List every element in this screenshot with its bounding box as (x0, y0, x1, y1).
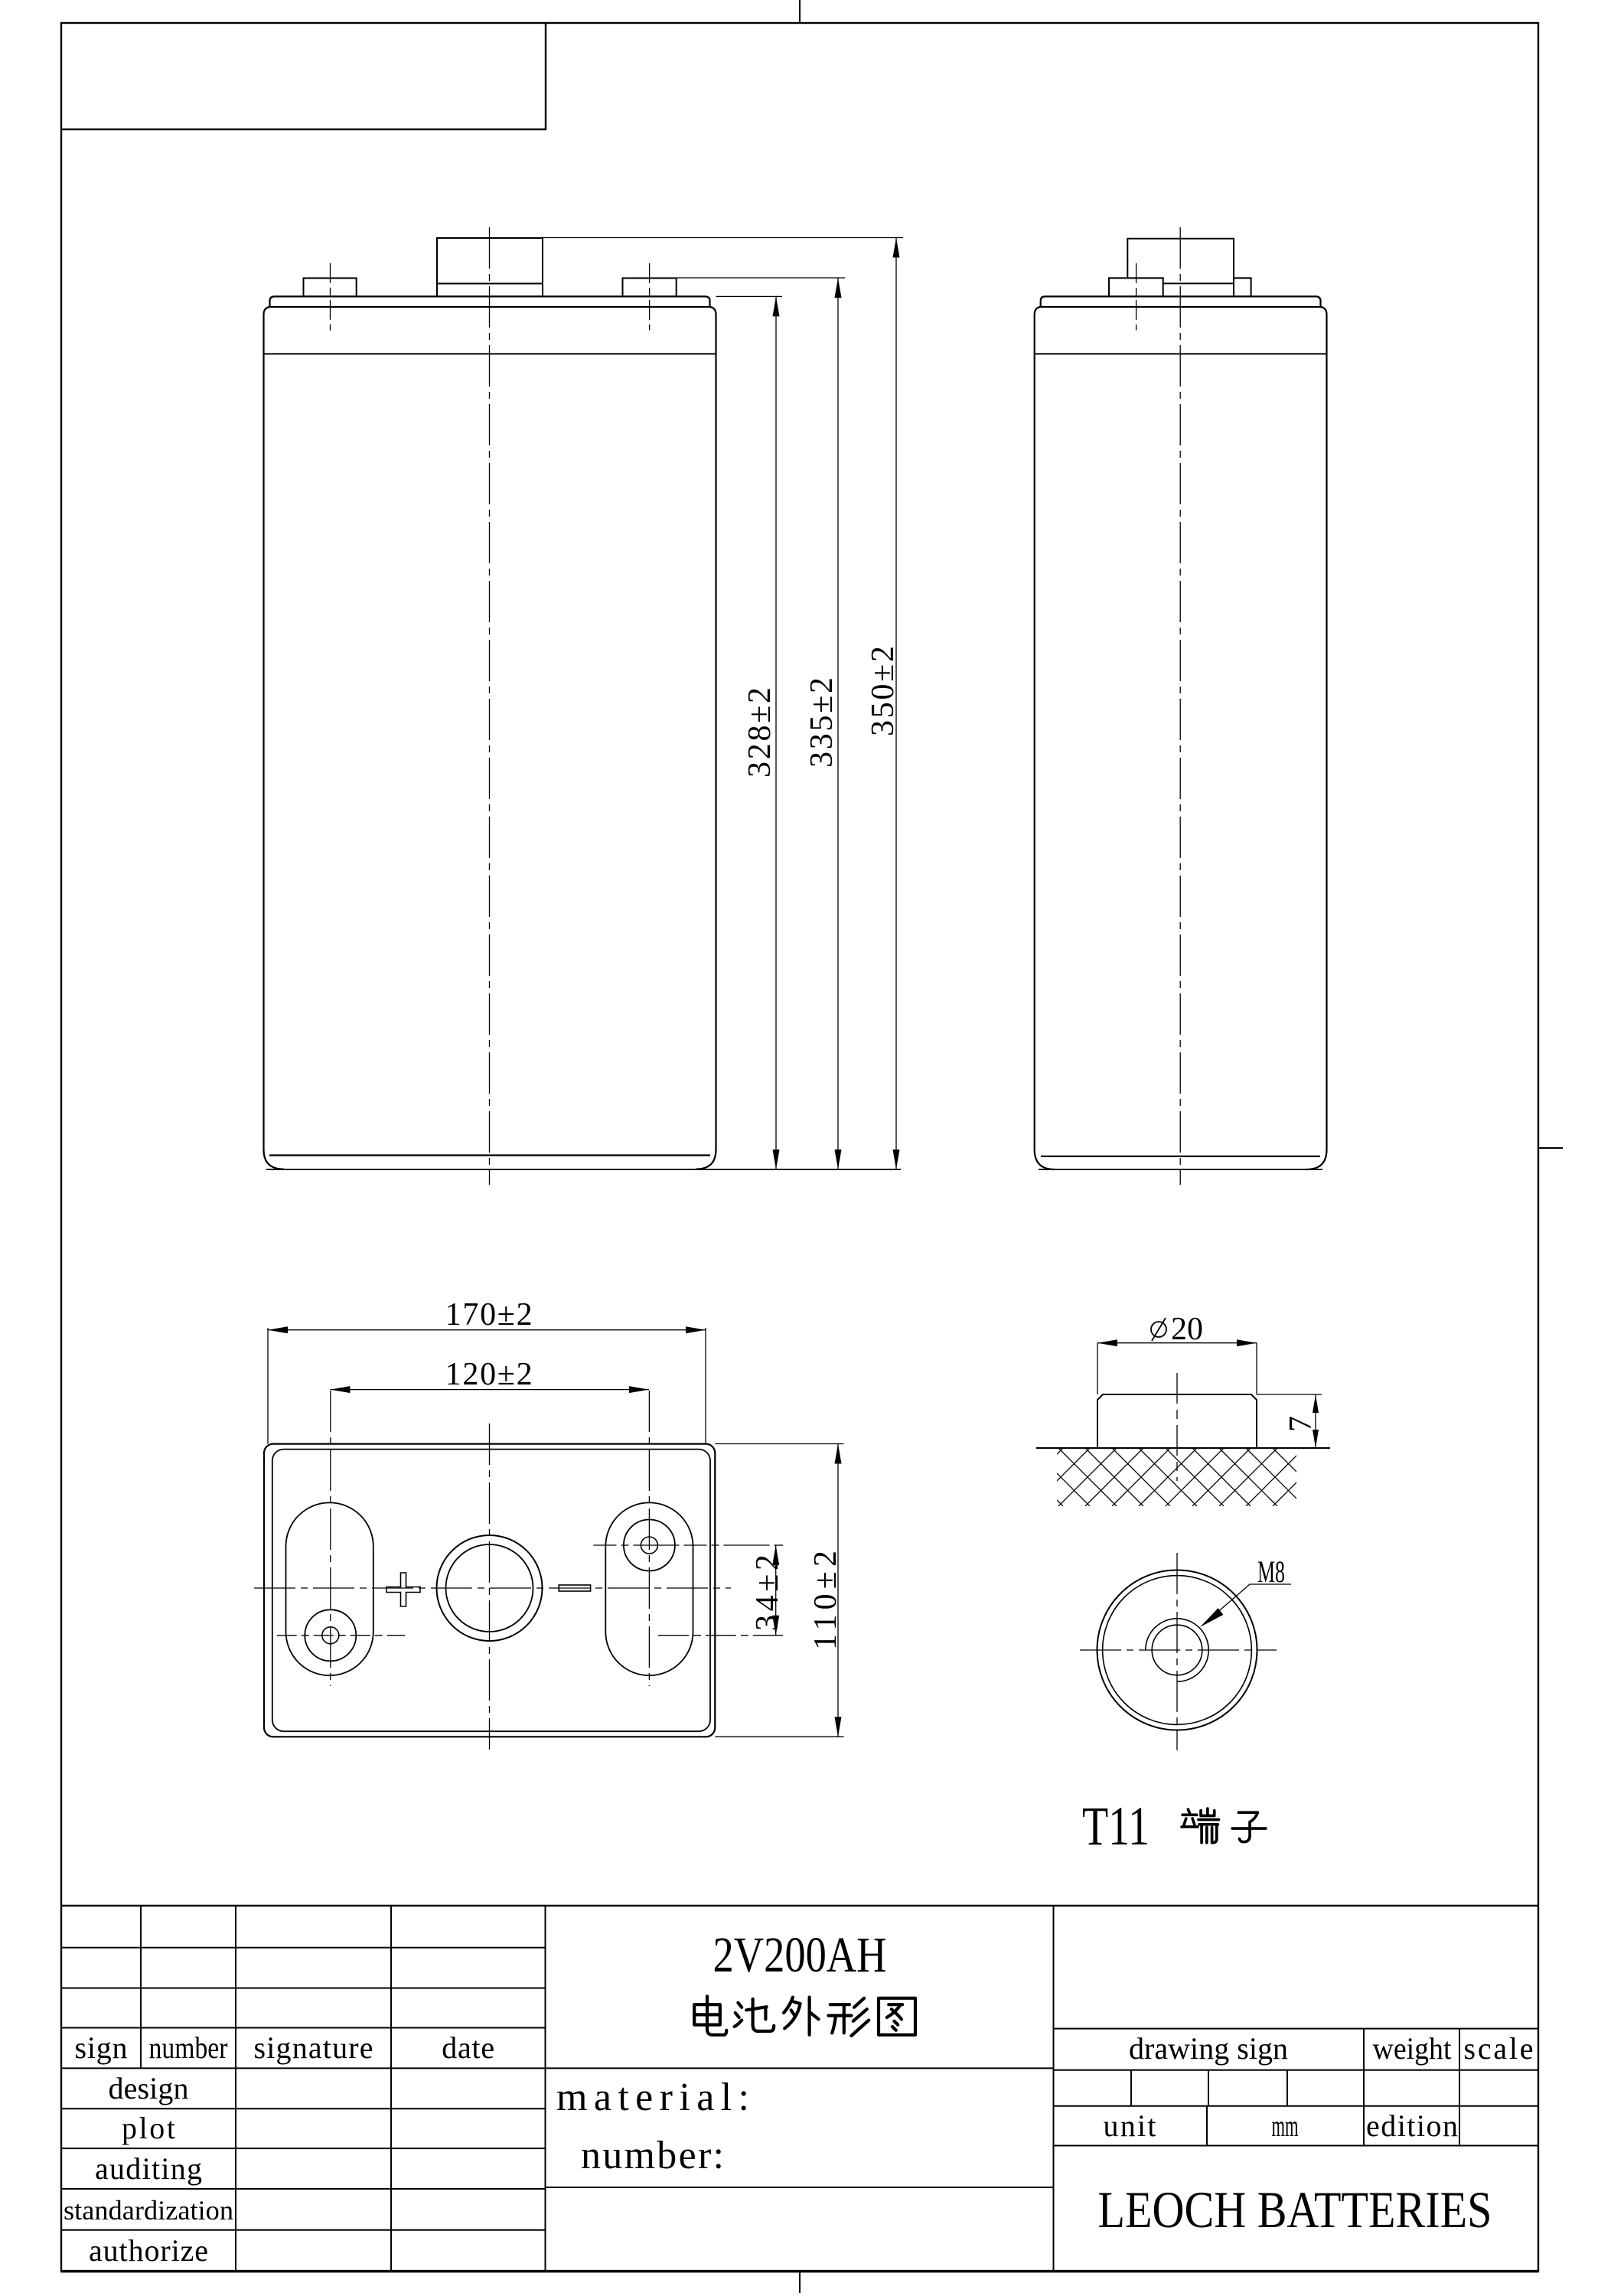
svg-text:design: design (109, 2071, 189, 2105)
svg-text:328±2: 328±2 (742, 687, 778, 778)
svg-text:material:: material: (556, 2076, 749, 2119)
svg-text:mm: mm (1272, 2108, 1299, 2143)
svg-text:number:: number: (581, 2134, 724, 2177)
svg-text:unit: unit (1104, 2108, 1156, 2143)
svg-text:M8: M8 (1257, 1554, 1285, 1589)
svg-text:7: 7 (1283, 1416, 1319, 1432)
svg-text:number: number (149, 2030, 228, 2065)
svg-text:335±2: 335±2 (804, 677, 840, 768)
svg-text:scale: scale (1464, 2031, 1534, 2066)
svg-text:170±2: 170±2 (445, 1297, 533, 1332)
svg-text:120±2: 120±2 (445, 1357, 533, 1392)
svg-text:date: date (442, 2030, 494, 2065)
svg-text:350±2: 350±2 (866, 646, 901, 736)
svg-text:weight: weight (1373, 2031, 1452, 2066)
svg-text:standardization: standardization (64, 2195, 233, 2226)
svg-text:LEOCH BATTERIES: LEOCH BATTERIES (1098, 2180, 1492, 2239)
svg-text:authorize: authorize (89, 2233, 208, 2268)
svg-text:sign: sign (75, 2030, 128, 2065)
svg-text:signature: signature (254, 2030, 373, 2065)
svg-text:20: 20 (1171, 1312, 1203, 1347)
svg-text:T11: T11 (1082, 1795, 1150, 1857)
svg-text:2V200AH: 2V200AH (713, 1927, 887, 1983)
svg-text:drawing sign: drawing sign (1129, 2031, 1288, 2066)
